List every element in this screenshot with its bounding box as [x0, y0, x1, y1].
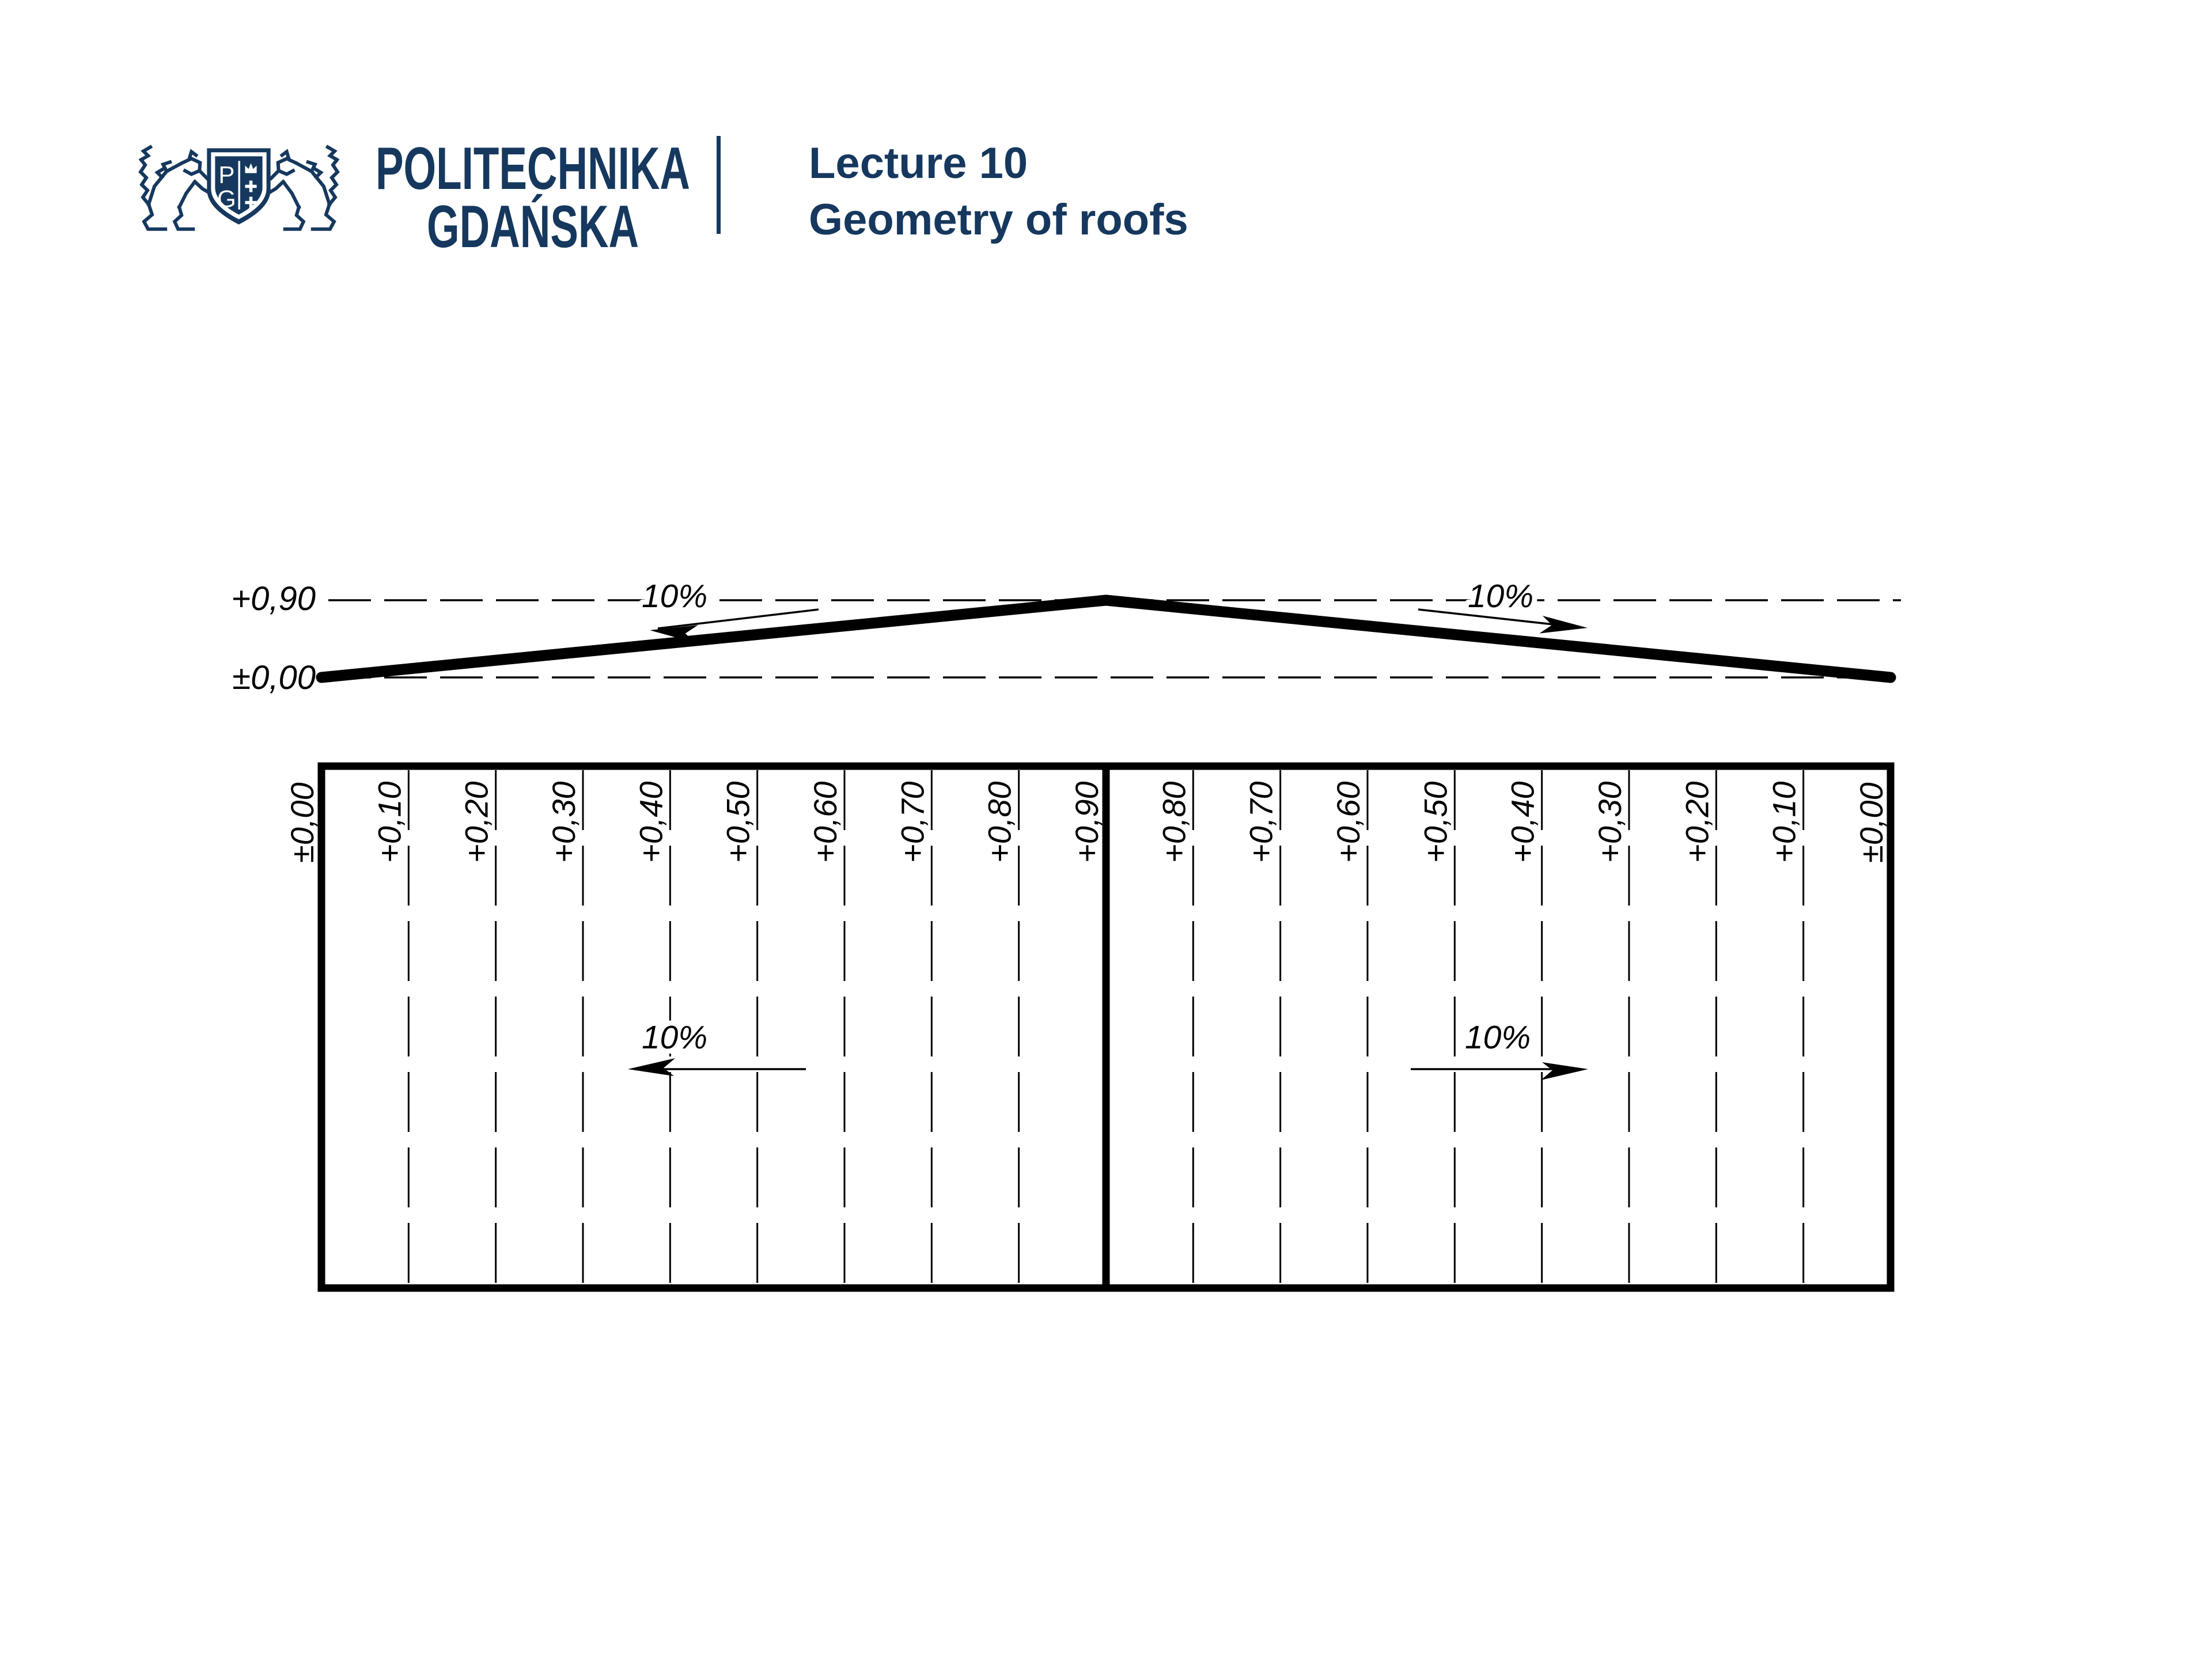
eave-level-label: ±0,00: [232, 659, 316, 696]
plan-contour-label: ±0,00: [284, 782, 320, 863]
roof-geometry-drawing: +0,90 ±0,00 10% 10% ±0,00+0,10+0,20+0,30…: [0, 0, 2212, 1659]
plan-contour-label: +0,60: [1330, 781, 1366, 863]
plan-contour-layer: ±0,00+0,10+0,20+0,30+0,40+0,50+0,60+0,70…: [284, 770, 1889, 1284]
plan-slope-annotation-left: 10%: [628, 1019, 806, 1076]
plan-contour-label: +0,50: [1417, 781, 1453, 863]
plan-contour-label: +0,10: [1766, 781, 1802, 863]
plan-contour-label: +0,70: [1243, 781, 1279, 863]
plan-contour-label: ±0,00: [1853, 782, 1889, 863]
plan-contour-label: +0,70: [894, 781, 930, 863]
plan-contour-label: +0,20: [459, 781, 495, 863]
plan-view: ±0,00+0,10+0,20+0,30+0,40+0,50+0,60+0,70…: [284, 766, 1891, 1288]
plan-contour-label: +0,10: [371, 781, 407, 863]
slope-percent-label: 10%: [1465, 1019, 1531, 1056]
slope-percent-label: 10%: [642, 578, 707, 615]
plan-contour-label: +0,90: [1069, 781, 1105, 863]
ridge-level-label: +0,90: [231, 580, 316, 618]
slide-canvas: P G POLITECHNIKA GDAŃSKA Lecture 10 Geom…: [0, 0, 2212, 1659]
plan-contour-label: +0,30: [1592, 781, 1628, 863]
slope-arrowhead-icon: [1541, 1062, 1588, 1080]
slope-percent-label: 10%: [642, 1019, 707, 1056]
plan-contour-label: +0,40: [1505, 781, 1541, 863]
plan-contour-label: +0,50: [720, 781, 756, 863]
elevation-view: +0,90 ±0,00 10% 10%: [231, 578, 1901, 696]
slope-arrowhead-icon: [1539, 616, 1588, 639]
plan-contour-label: +0,40: [632, 781, 669, 863]
plan-contour-label: +0,80: [1156, 781, 1192, 863]
slope-arrowhead-icon: [628, 1058, 675, 1076]
plan-contour-label: +0,20: [1679, 781, 1715, 863]
plan-contour-label: +0,30: [546, 781, 582, 863]
roof-profile-line: [321, 600, 1891, 677]
plan-contour-label: +0,80: [982, 781, 1018, 863]
plan-slope-annotation-right: 10%: [1411, 1019, 1588, 1080]
plan-contour-label: +0,60: [807, 781, 843, 863]
slope-percent-label: 10%: [1468, 578, 1533, 615]
